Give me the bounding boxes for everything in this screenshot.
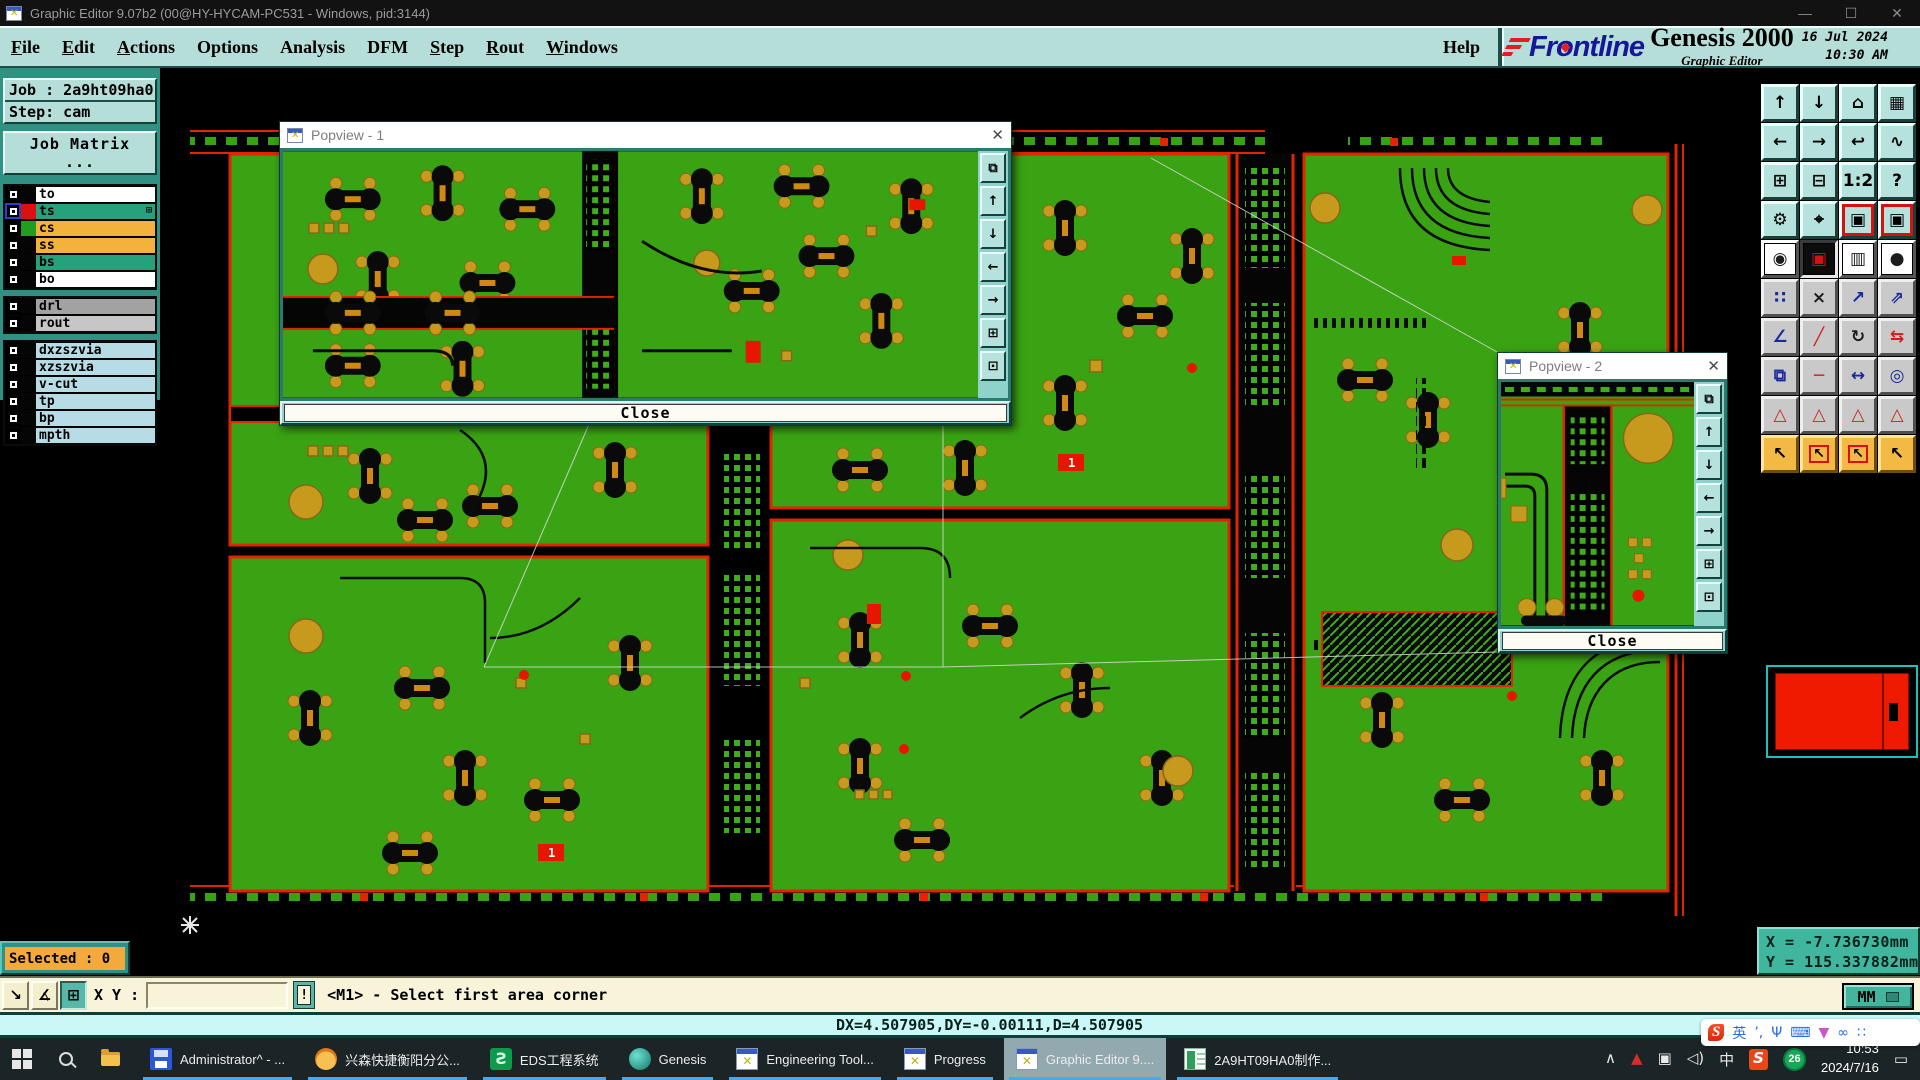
layer-row[interactable]: bs	[5, 254, 155, 271]
popview-tool-button[interactable]: ⊡	[980, 351, 1006, 381]
task-app-icon	[736, 1048, 758, 1070]
layer-color-swatch[interactable]	[21, 272, 36, 287]
popview-tool-button[interactable]: →	[1696, 516, 1722, 546]
coord-y: Y = 115.337882mm	[1766, 952, 1911, 972]
layer-checkbox[interactable]	[5, 393, 21, 409]
layer-row[interactable]: ts⊞	[5, 203, 155, 220]
layer-sidebar: Job : 2a9ht09ha0 Step: cam Job Matrix ..…	[0, 68, 160, 400]
close-icon[interactable]: ✕	[1707, 357, 1720, 375]
toolbar-button[interactable]: →	[1800, 123, 1838, 161]
menu-item[interactable]: Edit	[51, 37, 106, 58]
ime-toolbar-icon[interactable]: ∞	[1837, 1025, 1849, 1041]
status-tool-button[interactable]: ∡	[31, 981, 58, 1010]
status-bar: ↘∡⊞ X Y : ! <M1> - Select first area cor…	[0, 976, 1920, 1012]
selected-count-panel: Selected : 0	[0, 941, 130, 975]
popview-2-canvas[interactable]	[1501, 382, 1694, 626]
tray-icon[interactable]: 中	[1719, 1049, 1734, 1070]
app-icon	[6, 6, 22, 21]
layer-color-swatch[interactable]	[21, 221, 36, 236]
layer-checkbox[interactable]	[5, 298, 21, 314]
layer-name[interactable]: rout	[36, 316, 155, 331]
cursor-coordinates: X = -7.736730mm Y = 115.337882mm	[1757, 927, 1920, 975]
layer-name[interactable]: v-cut	[36, 377, 155, 392]
job-name: Job : 2a9ht09ha0	[5, 80, 155, 102]
layer-name[interactable]: bs	[36, 255, 155, 270]
layer-group-aux: dxzszvia xzszvia v-cut tp bp mpth	[3, 340, 157, 446]
taskbar-task-button[interactable]: 兴森快捷衡阳分公...	[303, 1038, 472, 1080]
menu-item[interactable]: Analysis	[269, 37, 356, 58]
toolbar-button[interactable]: ⚙	[1761, 201, 1799, 239]
layer-name[interactable]: drl	[36, 299, 155, 314]
job-panel: Job : 2a9ht09ha0 Step: cam	[3, 78, 157, 124]
layer-checkbox[interactable]	[5, 220, 21, 236]
crosshair-cursor-icon	[181, 916, 199, 934]
toolbar-button[interactable]: ↖	[1839, 435, 1877, 473]
layer-name[interactable]: ts⊞	[36, 204, 155, 219]
task-app-icon	[490, 1048, 512, 1070]
layer-row[interactable]: to	[5, 186, 155, 203]
coord-x: X = -7.736730mm	[1766, 932, 1911, 952]
toolbar-button[interactable]: ⌂	[1839, 84, 1877, 122]
alert-button[interactable]: !	[293, 981, 315, 1009]
layer-checkbox[interactable]	[5, 428, 21, 444]
taskbar-task-button[interactable]: Genesis	[617, 1038, 719, 1080]
popview-2-close-button[interactable]: Close	[1502, 632, 1723, 650]
svg-text:1: 1	[548, 846, 555, 860]
product-name: Genesis 2000	[1650, 25, 1794, 51]
task-app-icon	[629, 1048, 651, 1070]
toolbar-button[interactable]: ▦	[1878, 84, 1916, 122]
layer-color-swatch[interactable]	[21, 299, 36, 314]
toolbar-button[interactable]: ▣	[1800, 240, 1838, 278]
toolbar-button[interactable]: ╱	[1800, 318, 1838, 356]
popview-1-titlebar[interactable]: Popview - 1 ✕	[280, 122, 1011, 148]
file-explorer-button[interactable]	[88, 1038, 132, 1080]
popview-tool-button[interactable]: ⊞	[980, 318, 1006, 348]
layer-checkbox[interactable]	[5, 410, 21, 426]
popview-tool-button[interactable]: →	[980, 285, 1006, 315]
layer-row[interactable]: rout	[5, 315, 155, 332]
layer-name[interactable]: xzszvia	[36, 360, 155, 375]
window-title: Graphic Editor 9.07b2 (00@HY-HYCAM-PC531…	[30, 6, 430, 21]
window-titlebar: Graphic Editor 9.07b2 (00@HY-HYCAM-PC531…	[0, 0, 1920, 26]
popview-tool-button[interactable]: ←	[980, 252, 1006, 282]
status-tool-button[interactable]: ⊞	[60, 981, 87, 1010]
menu-item[interactable]: DFM	[356, 37, 419, 58]
layer-group-board: to ts⊞ cs ss bs bo	[3, 184, 157, 290]
action-center-icon[interactable]: ▭	[1894, 1050, 1908, 1068]
svg-text:1: 1	[1068, 456, 1075, 470]
tray-icon[interactable]: ◁)	[1687, 1049, 1704, 1070]
popview-tool-button[interactable]: ⊞	[1696, 549, 1722, 579]
popview-icon	[287, 128, 303, 143]
layer-name[interactable]: tp	[36, 394, 155, 409]
layer-checkbox[interactable]	[5, 237, 21, 253]
toolbar-button[interactable]: ─	[1800, 357, 1838, 395]
layer-checkbox[interactable]	[5, 203, 21, 219]
toolbar-button[interactable]: ⊞	[1761, 162, 1799, 200]
layer-color-swatch[interactable]	[21, 343, 36, 358]
ime-toolbar-icon[interactable]: ∷	[1857, 1025, 1866, 1041]
status-tool-button[interactable]: ↘	[2, 981, 29, 1010]
taskbar-task-button[interactable]: Graphic Editor 9....	[1004, 1038, 1166, 1080]
toolbar-button[interactable]: ↩	[1839, 123, 1877, 161]
toolbar-button[interactable]: ↖	[1761, 435, 1799, 473]
ime-toolbar-icon[interactable]: 英	[1732, 1023, 1746, 1043]
menu-item-help[interactable]: Help	[1425, 37, 1498, 58]
task-app-icon	[1184, 1048, 1206, 1070]
menu-item[interactable]: Step	[419, 37, 475, 58]
windows-taskbar: Administrator^ - ... 兴森快捷衡阳分公... EDS工程系统…	[0, 1038, 1920, 1080]
close-button[interactable]: ✕	[1874, 5, 1920, 22]
popview-tool-button[interactable]: ⊡	[1696, 582, 1722, 612]
popview-1-window[interactable]: Popview - 1 ✕	[279, 121, 1012, 426]
command-prompt-text: <M1> - Select first area corner	[327, 986, 1918, 1004]
popview-1-canvas[interactable]	[283, 151, 978, 398]
xy-coordinate-input[interactable]	[146, 982, 288, 1009]
layer-row[interactable]: mpth	[5, 427, 155, 444]
layer-row[interactable]: drl	[5, 298, 155, 315]
notification-badge[interactable]: 26	[1783, 1048, 1806, 1071]
popview-2-toolstrip: ⧉↑↓←→⊞⊡	[1694, 382, 1724, 626]
layer-row[interactable]: v-cut	[5, 376, 155, 393]
toolbar-button[interactable]: ↻	[1839, 318, 1877, 356]
menu-bar: FileEditActionsOptionsAnalysisDFMStepRou…	[0, 26, 1920, 68]
layer-name[interactable]: cs	[36, 221, 155, 236]
close-icon[interactable]: ✕	[991, 126, 1004, 144]
units-toggle-button[interactable]: MM	[1842, 983, 1914, 1010]
selected-count: Selected : 0	[5, 947, 125, 970]
menu-item[interactable]: Windows	[535, 37, 629, 58]
layer-name[interactable]: bo	[36, 272, 155, 287]
toolbar-button[interactable]: ∷	[1761, 279, 1799, 317]
toolbar-button[interactable]: ⇆	[1878, 318, 1916, 356]
toolbar-button[interactable]: ?	[1878, 162, 1916, 200]
tray-icon[interactable]: ∧	[1605, 1049, 1616, 1070]
toolbar-button[interactable]: ↑	[1761, 84, 1799, 122]
layer-row[interactable]: dxzszvia	[5, 342, 155, 359]
toolbar-button[interactable]: △	[1878, 396, 1916, 434]
layer-name[interactable]: mpth	[36, 428, 155, 443]
toolbar-button[interactable]: ←	[1761, 123, 1799, 161]
layer-color-swatch[interactable]	[21, 238, 36, 253]
layer-color-swatch[interactable]	[21, 204, 36, 219]
popview-icon	[1505, 359, 1521, 374]
layer-color-swatch[interactable]	[21, 428, 36, 443]
toolbar-button[interactable]: △	[1761, 396, 1799, 434]
sogou-input-bar: S英’,Ψ⌨▼∞∷	[1701, 1019, 1920, 1046]
popview-tool-button[interactable]: ⧉	[980, 153, 1006, 183]
xy-label: X Y :	[94, 986, 139, 1004]
layer-name[interactable]: to	[36, 187, 155, 202]
layer-color-swatch[interactable]	[21, 255, 36, 270]
layer-checkbox[interactable]	[5, 186, 21, 202]
menu-item[interactable]: Rout	[475, 37, 535, 58]
popview-tool-button[interactable]: ↑	[980, 186, 1006, 216]
toolbar-button[interactable]: ↖	[1878, 435, 1916, 473]
selection-preview-panel	[1766, 665, 1918, 758]
ime-toolbar-icon[interactable]: Ψ	[1771, 1025, 1782, 1041]
toolbar-button[interactable]: △	[1839, 396, 1877, 434]
taskbar-task-button[interactable]: EDS工程系统	[478, 1038, 611, 1080]
taskbar-task-button[interactable]: Administrator^ - ...	[138, 1038, 297, 1080]
layer-checkbox[interactable]	[5, 254, 21, 270]
layer-color-swatch[interactable]	[21, 187, 36, 202]
toolbar-button[interactable]: ⇗	[1878, 279, 1916, 317]
matrix-grid-icon: ⊞	[146, 206, 152, 216]
layer-color-swatch[interactable]	[21, 360, 36, 375]
popview-tool-button[interactable]: ↓	[980, 219, 1006, 249]
maximize-button[interactable]: ☐	[1828, 5, 1874, 22]
layer-row[interactable]: bp	[5, 410, 155, 427]
menu-item[interactable]: Actions	[106, 37, 186, 58]
layer-row[interactable]: xzszvia	[5, 359, 155, 376]
layer-color-swatch[interactable]	[21, 394, 36, 409]
toolbar-button[interactable]: ▣	[1878, 201, 1916, 239]
toolbar-button[interactable]: ↖	[1800, 435, 1838, 473]
toolbar-button[interactable]: ↗	[1839, 279, 1877, 317]
layer-checkbox[interactable]	[5, 316, 21, 332]
frontline-logo-bars-icon	[1501, 38, 1531, 56]
layer-checkbox[interactable]	[5, 359, 21, 375]
delta-values: DX=4.507905,DY=-0.00111,D=4.507905	[836, 1016, 1143, 1034]
date-display: 16 Jul 2024	[1802, 29, 1888, 47]
tray-icon[interactable]: ▲	[1631, 1049, 1643, 1070]
task-app-icon	[1016, 1048, 1038, 1070]
menu-item[interactable]: Options	[186, 37, 269, 58]
menu-item[interactable]: File	[0, 37, 51, 58]
windows-logo-icon	[12, 1049, 32, 1069]
delta-readout-bar: DX=4.507905,DY=-0.00111,D=4.507905	[0, 1012, 1920, 1038]
layer-group-drill: drl rout	[3, 296, 157, 334]
layer-checkbox[interactable]	[5, 342, 21, 358]
popview-2-titlebar[interactable]: Popview - 2 ✕	[1498, 353, 1727, 379]
job-matrix-button[interactable]: Job Matrix ...	[3, 131, 157, 175]
toolbar-button[interactable]: ↔	[1839, 357, 1877, 395]
popview-tool-button[interactable]: ↓	[1696, 450, 1722, 480]
ime-toolbar-icon[interactable]: S	[1708, 1024, 1724, 1041]
step-name: Step: cam	[5, 102, 155, 122]
search-icon	[59, 1052, 73, 1066]
toolbar-button[interactable]: ↓	[1800, 84, 1838, 122]
popview-tool-button[interactable]: ⧉	[1696, 384, 1722, 414]
layer-color-swatch[interactable]	[21, 411, 36, 426]
ime-toolbar-icon[interactable]: ▼	[1819, 1025, 1830, 1041]
layer-name[interactable]: dxzszvia	[36, 343, 155, 358]
branding-panel: Frontline Genesis 2000 Graphic Editor 16…	[1502, 28, 1920, 66]
task-app-icon	[904, 1048, 926, 1070]
toolbar-button[interactable]: 1:2	[1839, 162, 1877, 200]
layer-row[interactable]: tp	[5, 393, 155, 410]
popview-2-window[interactable]: Popview - 2 ✕	[1497, 352, 1728, 654]
layer-color-swatch[interactable]	[21, 377, 36, 392]
start-button[interactable]	[0, 1038, 44, 1080]
taskbar-task-button[interactable]: 2A9HT09HA0制作...	[1172, 1038, 1343, 1080]
toolbar-button[interactable]: ●	[1878, 240, 1916, 278]
popview-tool-button[interactable]: ↑	[1696, 417, 1722, 447]
ime-toolbar-icon[interactable]: ⌨	[1790, 1025, 1810, 1041]
taskbar-task-button[interactable]: Engineering Tool...	[724, 1038, 885, 1080]
product-edition: Graphic Editor	[1681, 53, 1762, 69]
folder-icon	[101, 1052, 120, 1066]
toolbar-button[interactable]: ◎	[1878, 357, 1916, 395]
toolbar-button[interactable]: ×	[1800, 279, 1838, 317]
toolbar-button[interactable]: ⌖	[1800, 201, 1838, 239]
ime-toolbar-icon[interactable]: ’,	[1754, 1025, 1763, 1041]
taskbar-task-button[interactable]: Progress	[892, 1038, 998, 1080]
selected-shape-preview	[1775, 673, 1909, 750]
task-app-icon	[315, 1048, 337, 1070]
toolbar-button[interactable]: ▣	[1839, 201, 1877, 239]
layer-color-swatch[interactable]	[21, 316, 36, 331]
tray-icon[interactable]: S	[1749, 1049, 1768, 1070]
right-toolbar-column: ↑ ↓ ⌂ ▦ ← → ↩ ∿ ⊞ ⊟ 1:2 ? ⚙ ⌖ ▣ ▣	[1757, 68, 1920, 1012]
toolbar-button[interactable]: ∠	[1761, 318, 1799, 356]
layer-checkbox[interactable]	[5, 376, 21, 392]
units-indicator	[1886, 992, 1899, 1002]
minimize-button[interactable]: —	[1782, 5, 1828, 22]
task-app-icon	[150, 1048, 172, 1070]
popview-1-close-button[interactable]: Close	[284, 404, 1007, 422]
toolbar-button[interactable]: △	[1800, 396, 1838, 434]
popview-1-toolstrip: ⧉↑↓←→⊞⊡	[978, 151, 1008, 398]
toolbar-button[interactable]: ▥	[1839, 240, 1877, 278]
layer-name[interactable]: bp	[36, 411, 155, 426]
popview-tool-button[interactable]: ←	[1696, 483, 1722, 513]
layer-checkbox[interactable]	[5, 272, 21, 288]
toolbar-button[interactable]: ◉	[1761, 240, 1799, 278]
popview-title: Popview - 2	[1529, 358, 1602, 374]
time-display: 10:30 AM	[1825, 47, 1888, 65]
tray-icon[interactable]: ▣	[1658, 1049, 1672, 1070]
layer-row[interactable]: bo	[5, 271, 155, 288]
toolbar-button[interactable]: ⧉	[1761, 357, 1799, 395]
layer-row[interactable]: cs	[5, 220, 155, 237]
toolbar-button[interactable]: ⊟	[1800, 162, 1838, 200]
frontline-logo: Frontline	[1529, 31, 1644, 64]
toolbar-button[interactable]: ∿	[1878, 123, 1916, 161]
search-button[interactable]	[44, 1038, 88, 1080]
layer-row[interactable]: ss	[5, 237, 155, 254]
popview-title: Popview - 1	[311, 127, 384, 143]
layer-name[interactable]: ss	[36, 238, 155, 253]
